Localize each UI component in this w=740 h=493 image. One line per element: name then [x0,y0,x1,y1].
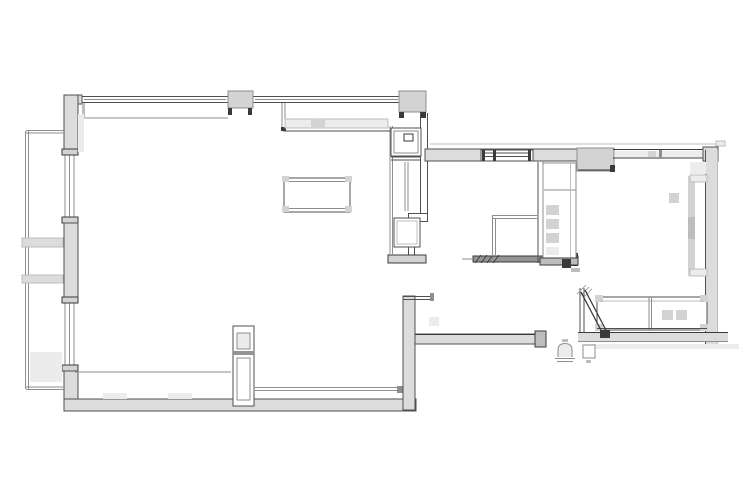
window-counter-tint [311,119,325,128]
door-threshold [583,345,595,358]
interior-window-tick-1 [482,150,485,161]
interior-window [481,150,533,161]
closet-endcap [540,258,578,265]
entry-tick [562,339,568,342]
balcony-divider-lower [22,275,63,283]
floor-plan-page [0,0,740,493]
pillar-mid-tick-right [248,108,252,115]
hall-south-wall [415,334,537,344]
apartment-floor-plan [0,0,740,493]
interior-window-tick-2 [493,150,496,161]
bed-cap-br [700,324,708,331]
entry-arch [558,344,572,358]
column-top-inner [237,333,250,349]
closet-endcap-dark [562,259,571,268]
floor-smudge-left [103,393,127,399]
pillar-right-tick-left [399,112,404,118]
partition-tail [571,268,580,272]
column-divider [233,351,254,355]
door-threshold-tick [586,360,591,363]
closet-shelf-2 [546,219,559,229]
pillar-mid-tick-left [228,108,232,115]
closet-shelf-3 [546,233,559,243]
balcony-floor-tint [30,352,62,382]
bedroom-floor-marker [669,193,679,203]
wall-step-block [577,148,614,171]
left-window-lower-cap-bottom [62,365,78,371]
hall-stub-tick [430,293,434,301]
dining-table-cap-tr [345,176,352,182]
interior-window-tick-3 [528,150,531,161]
closet-shelf-4 [546,247,559,255]
hall-west-wall [403,296,415,410]
kitchen-appliance-upper [391,128,421,156]
dining-table-cap-bl [282,206,289,212]
bedroom-corner-tint [690,162,706,174]
left-window-lower-cap-top [62,297,78,303]
wardrobe-rail-mid [688,217,695,239]
right-wall-band [706,150,718,345]
sofa-back-endcap [397,386,403,393]
kitchen-appliance-lower [394,218,420,247]
floor-smudge-right [168,393,192,399]
wing-roof-tick [716,141,725,146]
left-wall-upper [64,95,78,152]
balcony-divider-upper [22,238,63,247]
closet-shelf-1 [546,205,559,215]
bedroom-window-mullion-a [648,151,656,157]
wall-step-corner [610,165,615,172]
bedroom-window-mullion-b [659,150,662,158]
kitchen-endcap [388,255,426,263]
hall-wall-endcap [535,331,546,347]
door-leaf-end [600,330,610,338]
dining-table-cap-tl [282,176,289,182]
bed-frame [597,297,707,330]
left-wall-inner-tint [78,114,84,152]
bed-pillow-left [662,310,673,320]
left-window-upper-cap-bottom [62,217,78,223]
hall-door-tint [429,317,439,326]
dining-table [284,178,350,212]
wardrobe-cap-top [690,175,707,182]
bed-pillow-right [676,310,687,320]
dining-table-cap-br [345,206,352,212]
top-wall-pillar-mid [228,91,253,108]
top-wall-pillar-right [399,91,426,112]
bedroom-south-shadow [592,344,739,349]
left-window-upper-cap-top [62,149,78,155]
left-wall-middle [64,223,78,298]
wardrobe-cap-bottom [690,269,707,276]
window-counter [285,119,388,128]
